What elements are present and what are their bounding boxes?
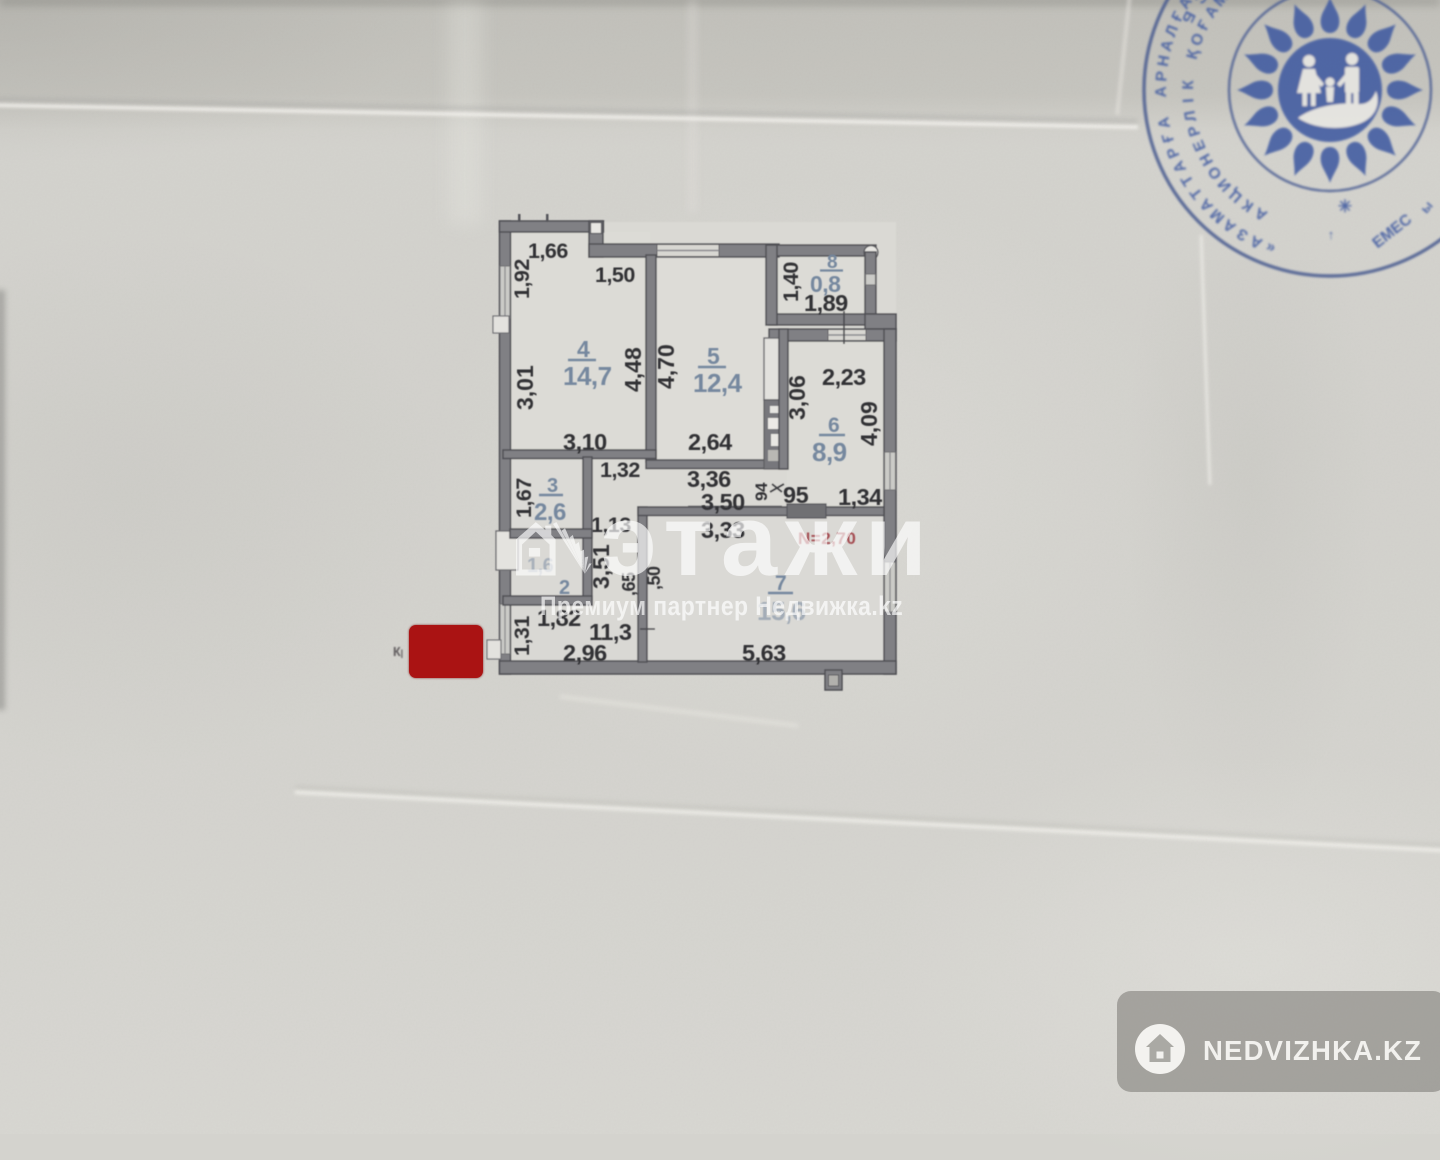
svg-text:4: 4 — [577, 336, 590, 362]
svg-text:Ғ: Ғ — [1159, 131, 1178, 144]
svg-text:О: О — [1188, 31, 1208, 48]
svg-text:3,06: 3,06 — [784, 375, 810, 420]
svg-text:Р: Р — [1164, 145, 1184, 161]
svg-text:Р: Р — [1153, 71, 1171, 83]
svg-text:1,66: 1,66 — [528, 239, 568, 263]
svg-text:Л: Л — [1182, 109, 1201, 123]
svg-text:1,50: 1,50 — [595, 263, 635, 287]
svg-text:4,09: 4,09 — [856, 401, 882, 446]
svg-text:1,40: 1,40 — [779, 262, 803, 302]
svg-text:Қ: Қ — [1184, 47, 1203, 61]
svg-text:3,01: 3,01 — [512, 365, 538, 410]
svg-text:2,64: 2,64 — [688, 429, 732, 455]
svg-text:ы: ы — [1417, 198, 1436, 216]
svg-text:4,48: 4,48 — [620, 347, 646, 392]
svg-text:2,23: 2,23 — [822, 364, 866, 390]
svg-text:А: А — [1153, 86, 1170, 97]
svg-text:«: « — [1264, 238, 1278, 257]
svg-text:✳: ✳ — [1338, 197, 1352, 216]
svg-text:Р: Р — [1185, 124, 1204, 139]
svg-text:12,4: 12,4 — [693, 368, 743, 398]
svg-text:3,10: 3,10 — [563, 429, 607, 455]
svg-text:Н: Н — [1155, 54, 1174, 68]
svg-text:14,7: 14,7 — [563, 361, 612, 391]
svg-text:К: К — [1180, 79, 1197, 90]
svg-text:А: А — [1252, 203, 1270, 223]
svg-text:З: З — [1234, 224, 1251, 244]
svg-text:8,9: 8,9 — [812, 437, 847, 467]
svg-text:І: І — [1180, 98, 1197, 104]
svg-text:Т: Т — [1187, 184, 1207, 202]
svg-text:Е: Е — [1190, 137, 1210, 153]
svg-text:↑: ↑ — [1328, 227, 1335, 242]
svg-text:11,3: 11,3 — [589, 619, 632, 645]
svg-text:1,31: 1,31 — [510, 616, 534, 656]
svg-text:1,92: 1,92 — [510, 259, 534, 299]
svg-text:1,67: 1,67 — [512, 478, 536, 518]
svg-text:5,63: 5,63 — [742, 640, 786, 666]
svg-text:А: А — [1158, 38, 1177, 53]
svg-text:Л: Л — [1162, 23, 1182, 39]
svg-text:0,8: 0,8 — [810, 271, 841, 297]
svg-text:А: А — [1170, 158, 1190, 176]
svg-text:А: А — [1248, 231, 1266, 251]
svg-text:Т: Т — [1178, 171, 1198, 189]
svg-text:ЕМЕС: ЕМЕС — [1369, 211, 1415, 252]
svg-text:6: 6 — [828, 414, 840, 437]
svg-text:А: А — [1155, 116, 1174, 130]
svg-text:1,32: 1,32 — [600, 458, 640, 482]
svg-text:4,70: 4,70 — [653, 344, 679, 389]
svg-text:3: 3 — [547, 475, 558, 497]
svg-text:5: 5 — [707, 343, 720, 369]
svg-text:Н: Н — [1197, 150, 1217, 168]
